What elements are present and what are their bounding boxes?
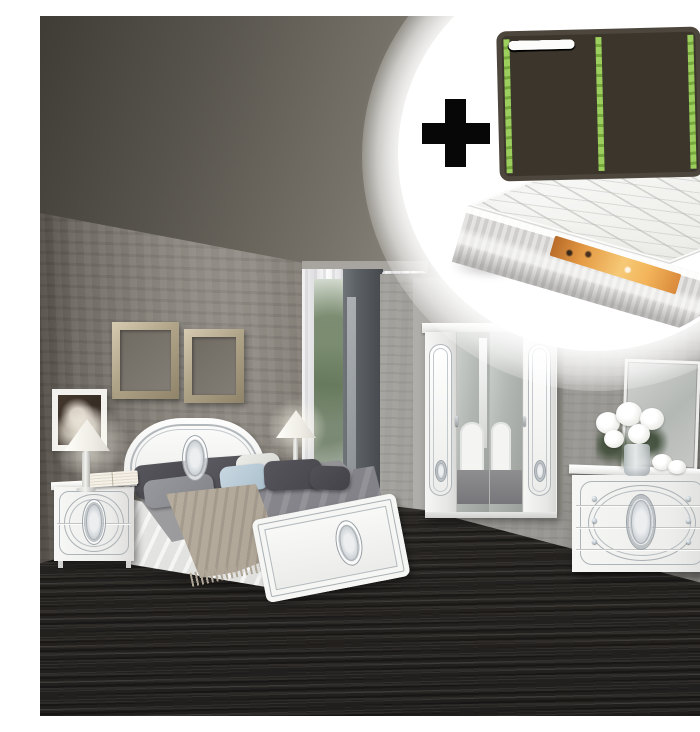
pillar-highlight bbox=[347, 297, 356, 493]
dresser bbox=[572, 475, 700, 572]
empty-frame-left-inside bbox=[120, 330, 171, 391]
slat-half bbox=[505, 39, 602, 50]
flower-bloom bbox=[604, 430, 624, 448]
left-table-lamp-base bbox=[76, 487, 96, 492]
wardrobe-plinth bbox=[425, 512, 557, 518]
mirror-reflection-headboard bbox=[460, 422, 484, 474]
wardrobe-handle-right bbox=[523, 416, 526, 426]
headboard-medallion bbox=[182, 435, 208, 481]
plus-icon bbox=[422, 99, 490, 167]
empty-frame-left bbox=[112, 322, 179, 399]
slat-rail-green bbox=[595, 37, 604, 171]
wardrobe-right-medallion bbox=[534, 460, 546, 482]
dresser-knob bbox=[592, 518, 597, 523]
dresser-knob bbox=[686, 496, 691, 501]
nightstand-leg bbox=[126, 561, 131, 568]
mirror-reflection-bedding bbox=[490, 470, 522, 504]
mirror-reflection-headboard bbox=[491, 422, 511, 474]
wardrobe-left-medallion bbox=[435, 460, 447, 482]
plus-icon-bar bbox=[445, 99, 466, 167]
nightstand-leg bbox=[58, 561, 63, 568]
slat bbox=[508, 40, 574, 51]
slat-row bbox=[505, 37, 699, 51]
wardrobe-handle-left bbox=[455, 416, 458, 426]
empty-frame-right bbox=[184, 329, 244, 403]
left-table-lamp-stem bbox=[82, 451, 90, 489]
flower-bloom-small bbox=[668, 460, 686, 474]
product-photo-bedroom-set bbox=[40, 16, 700, 716]
dresser-knob bbox=[592, 539, 597, 544]
window-glass bbox=[314, 279, 344, 485]
flower-vase bbox=[624, 444, 650, 476]
flower-bloom bbox=[616, 402, 642, 426]
empty-frame-right-inside bbox=[192, 337, 236, 395]
nightstand bbox=[54, 487, 134, 561]
pillow-dark bbox=[310, 465, 351, 490]
window-pillar bbox=[343, 269, 383, 499]
dresser-knob bbox=[686, 518, 691, 523]
dresser-knob bbox=[686, 539, 691, 544]
wardrobe-door-left bbox=[425, 332, 457, 512]
nightstand-medallion bbox=[82, 499, 106, 545]
slat-rail-green bbox=[503, 39, 512, 173]
dresser-knob bbox=[592, 496, 597, 501]
slat-rail-green bbox=[687, 35, 696, 169]
mirror-reflection-bedding bbox=[457, 470, 489, 504]
flower-bloom bbox=[628, 424, 650, 444]
inset-circle bbox=[402, 16, 700, 347]
slatted-bed-base bbox=[496, 27, 700, 182]
dresser-medallion bbox=[626, 494, 656, 550]
